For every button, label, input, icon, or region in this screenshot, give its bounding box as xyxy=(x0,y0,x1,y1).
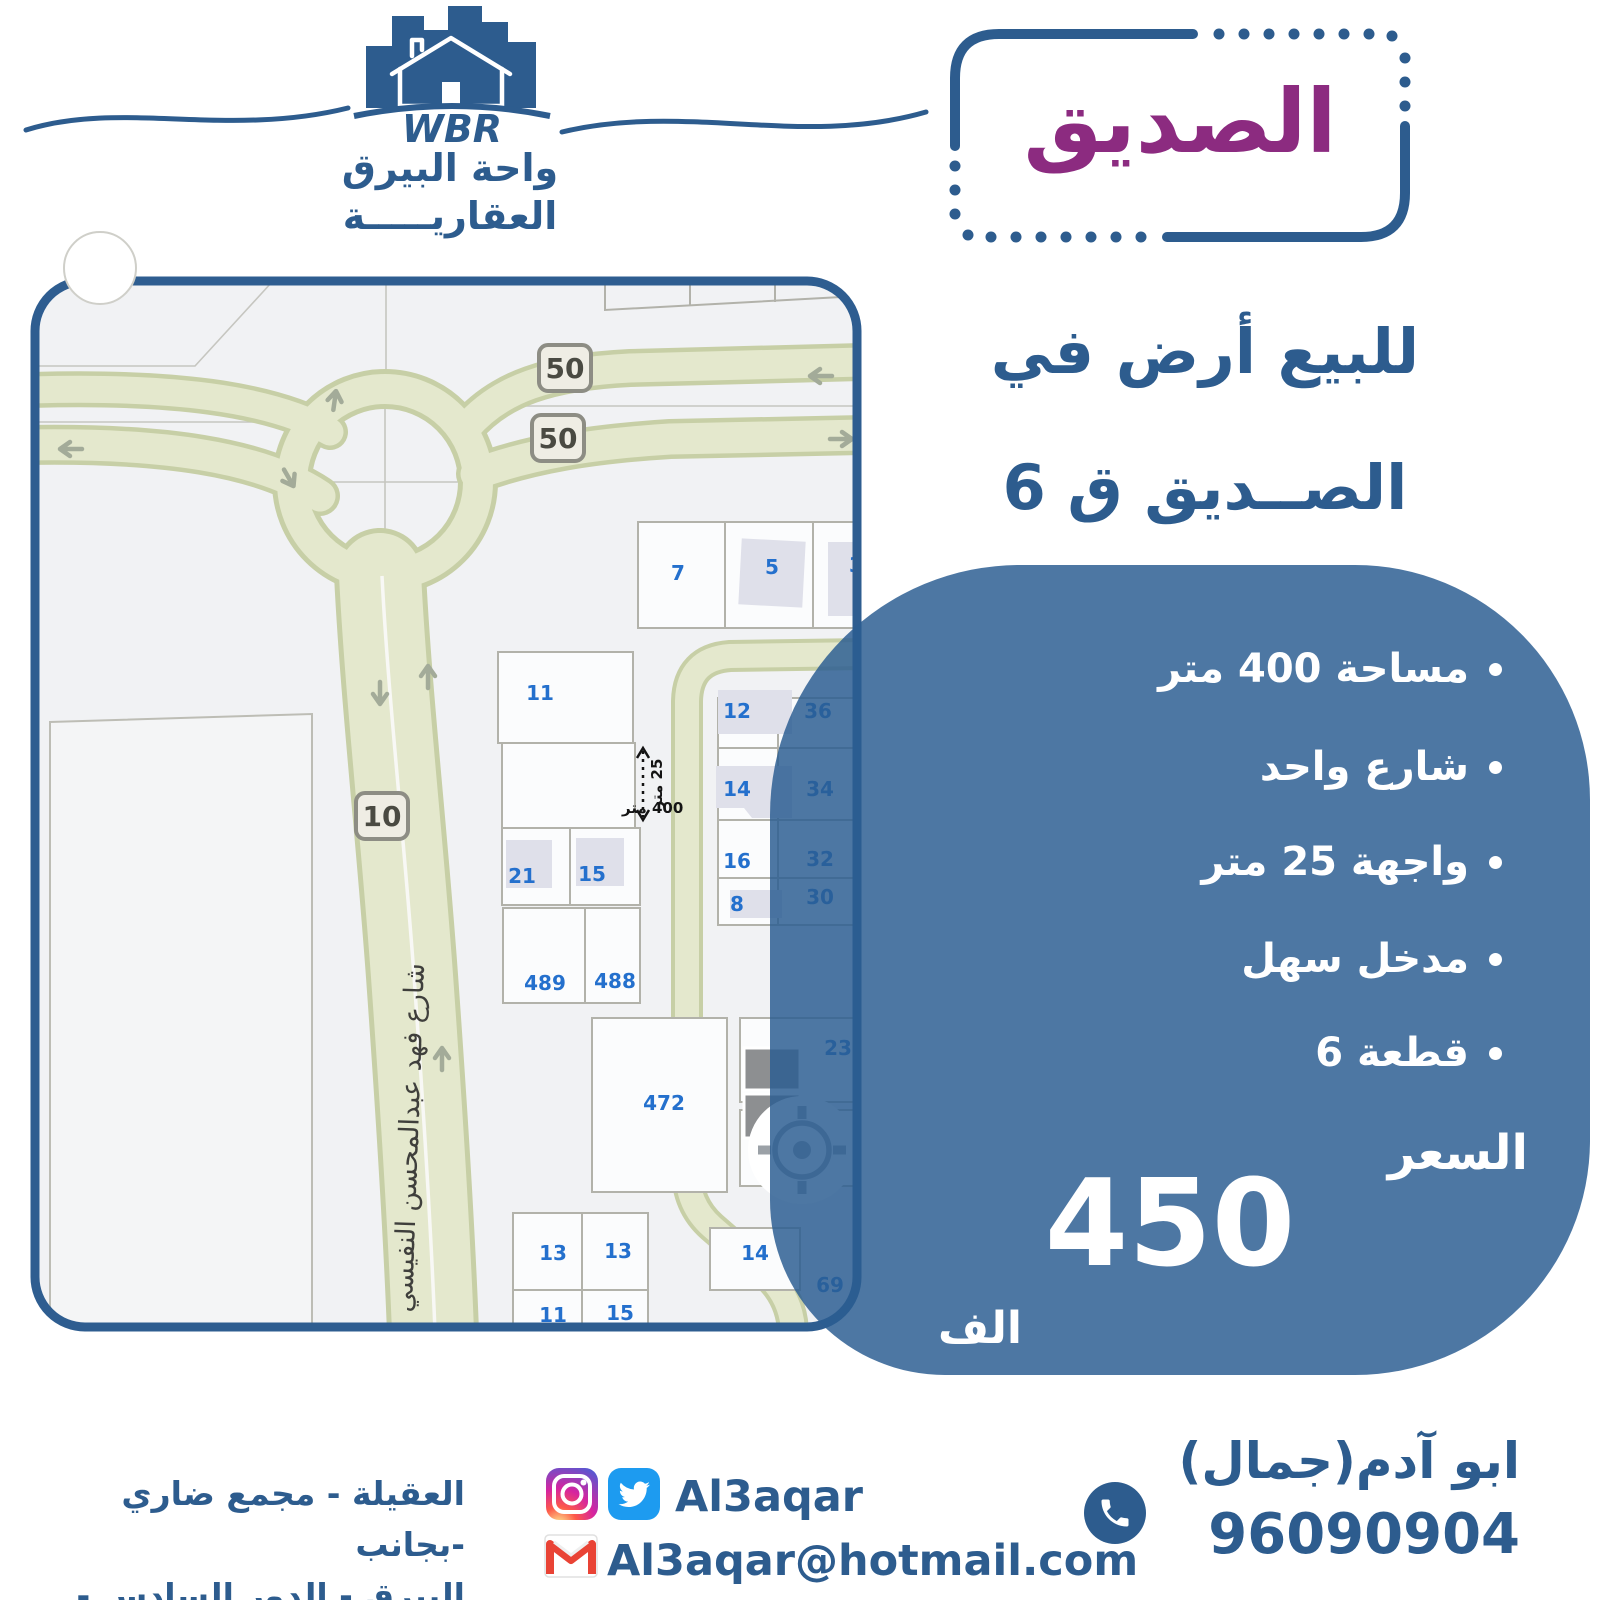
svg-text:12: 12 xyxy=(723,699,751,723)
svg-text:11: 11 xyxy=(526,681,554,705)
svg-text:25 متر: 25 متر xyxy=(648,759,666,811)
phone-number: 96090904 xyxy=(1130,1502,1520,1567)
feature-area: مساحة 400 متر xyxy=(1158,646,1502,692)
bullet-dot xyxy=(1489,761,1502,774)
location-map: 50 50 10 7 5 3 11 12 36 14 34 16 32 xyxy=(30,276,862,1332)
map-notch-circle xyxy=(64,232,136,304)
wbr-logo: WBR xyxy=(352,0,552,145)
wbr-wordmark: WBR xyxy=(402,107,502,151)
left-wave-decoration xyxy=(22,92,352,142)
svg-text:14: 14 xyxy=(741,1241,769,1265)
instagram-icon xyxy=(544,1466,600,1522)
address-line1: العقيلة - مجمع ضاري -بجانب xyxy=(35,1468,465,1570)
flyer-canvas: WBR واحة البيرق العقاريـــــة الصديق للب… xyxy=(0,0,1600,1600)
district-title: الصديق xyxy=(950,70,1410,173)
right-wave-decoration xyxy=(558,98,930,150)
bullet-dot xyxy=(1489,953,1502,966)
svg-text:14: 14 xyxy=(723,777,751,801)
road-badge-50-lower: 50 xyxy=(532,415,584,461)
headline-line2: الصــديق ق 6 xyxy=(950,452,1460,523)
price-unit: الف xyxy=(910,1303,1050,1354)
feature-frontage: واجهة 25 متر xyxy=(1201,839,1502,885)
gmail-icon xyxy=(544,1534,598,1578)
svg-text:13: 13 xyxy=(604,1239,632,1263)
twitter-icon xyxy=(606,1466,662,1522)
svg-text:488: 488 xyxy=(594,969,636,993)
svg-text:5: 5 xyxy=(765,555,779,579)
svg-text:10: 10 xyxy=(363,800,402,833)
headline-line1: للبيع أرض في xyxy=(950,316,1460,387)
bullet-dot xyxy=(1489,1047,1502,1060)
svg-text:21: 21 xyxy=(508,864,536,888)
svg-text:50: 50 xyxy=(539,422,578,455)
bullet-dot xyxy=(1489,663,1502,676)
empty-plot-west xyxy=(50,714,312,1326)
feature-entrance: مدخل سهل xyxy=(1241,936,1502,982)
svg-text:15: 15 xyxy=(578,862,606,886)
email-address: Al3aqar@hotmail.com xyxy=(607,1536,1138,1586)
address-line2: البيرق - الدور السادس - مكتب 6 xyxy=(35,1570,465,1600)
social-handle: Al3aqar xyxy=(675,1472,863,1522)
feature-plot: قطعة 6 xyxy=(1315,1030,1502,1076)
svg-text:15: 15 xyxy=(606,1301,634,1325)
svg-text:50: 50 xyxy=(546,352,585,385)
bullet-dot xyxy=(1489,856,1502,869)
svg-text:489: 489 xyxy=(524,971,566,995)
offer-card: مساحة 400 متر شارع واحد واجهة 25 متر مدخ… xyxy=(770,565,1590,1375)
brand-name-line2: العقاريـــــة xyxy=(330,194,570,238)
svg-text:16: 16 xyxy=(723,849,751,873)
price-value: 450 xyxy=(860,1165,1480,1285)
svg-text:7: 7 xyxy=(671,561,685,585)
road-badge-50-upper: 50 xyxy=(539,345,591,391)
svg-text:8: 8 xyxy=(730,892,744,916)
office-address: العقيلة - مجمع ضاري -بجانب البيرق - الدو… xyxy=(35,1468,465,1600)
road-badge-10: 10 xyxy=(356,793,408,839)
feature-street: شارع واحد xyxy=(1260,744,1502,790)
brand-name-line1: واحة البيرق xyxy=(330,146,570,190)
svg-text:13: 13 xyxy=(539,1241,567,1265)
svg-text:472: 472 xyxy=(643,1091,685,1115)
